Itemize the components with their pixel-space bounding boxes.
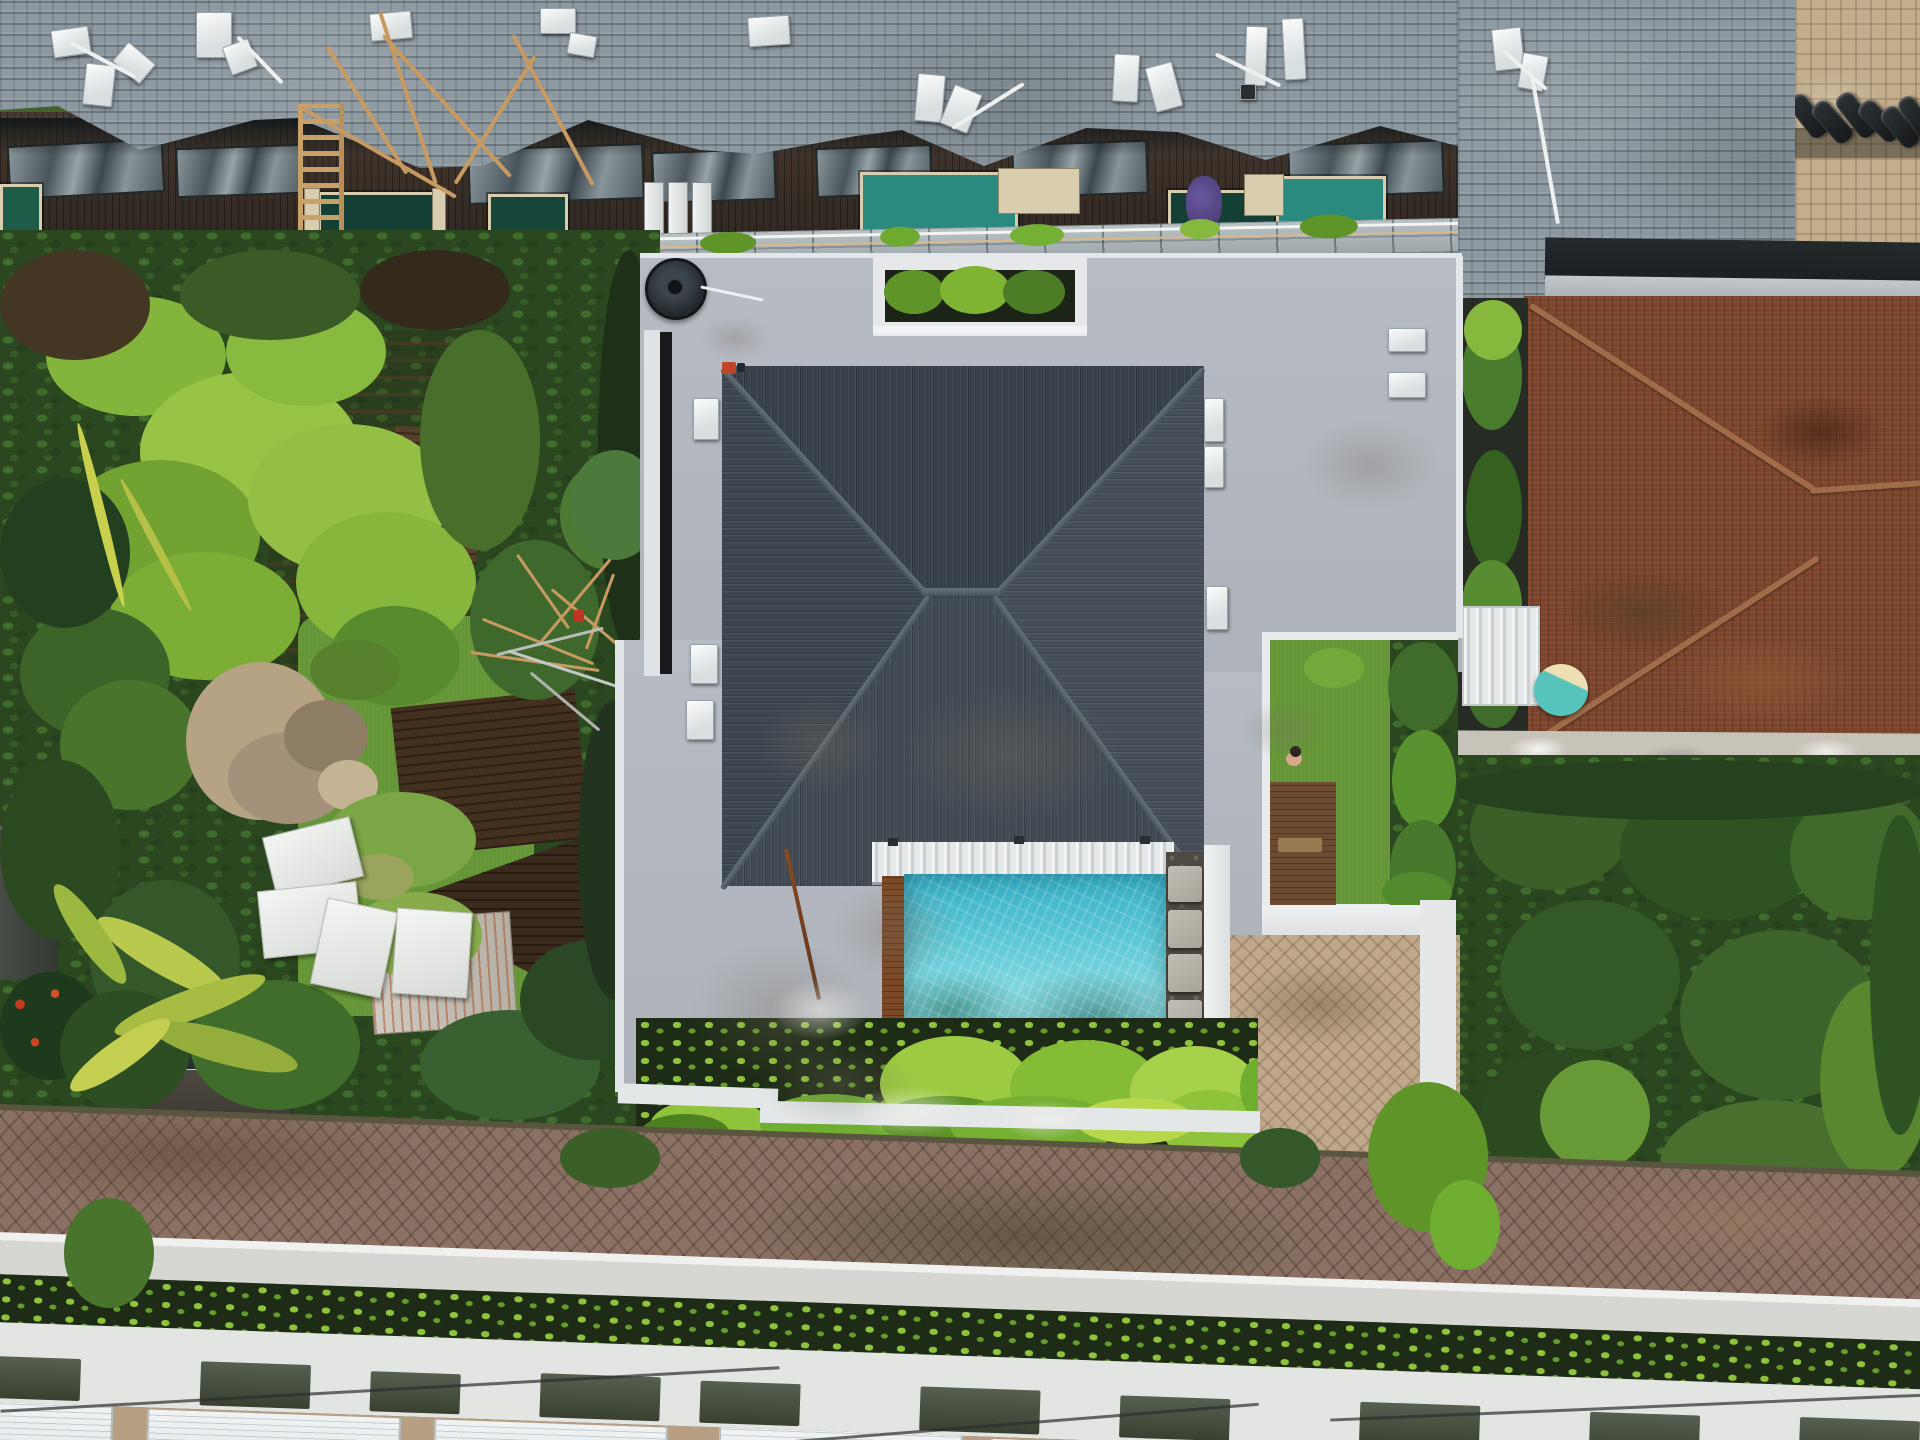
roof-stains-2 [830, 880, 960, 980]
parapet-slot [660, 332, 672, 674]
court-blobs-0 [1388, 642, 1458, 732]
wall-openings-9 [1799, 1417, 1920, 1440]
court-blobs-1 [1392, 730, 1456, 830]
stones-1 [1168, 910, 1202, 948]
ac-villa-2 [686, 700, 714, 740]
terracotta-hip-lower [1528, 555, 1820, 747]
wall-openings-4 [699, 1381, 800, 1426]
overhang-blobs-1 [64, 1198, 154, 1308]
styro-boxes-3 [391, 907, 473, 998]
notch-blobs-1 [940, 266, 1010, 314]
garden-blobs-17 [0, 760, 120, 940]
hip-ridge-center [922, 588, 1000, 596]
red-marker [722, 362, 736, 374]
ac-villa-0 [693, 398, 719, 440]
walk-tufts-6 [880, 226, 920, 247]
ac-top-6 [540, 8, 576, 34]
pergola-post-right [1140, 836, 1150, 844]
terracotta-ridge-main [1810, 480, 1920, 494]
ac-top-10 [939, 84, 983, 134]
wall-openings-7 [1359, 1402, 1480, 1440]
pavers-white-strip [1420, 900, 1456, 1110]
right-blobs-3 [1500, 900, 1680, 1050]
right-blobs-11 [1540, 1060, 1650, 1170]
ac-top-11 [1112, 53, 1140, 102]
balcony-pools-0 [0, 184, 42, 234]
ac-villa-3 [1204, 398, 1224, 442]
ac-villa-5 [1206, 586, 1228, 630]
overhang-blobs-3 [1240, 1128, 1320, 1188]
ac-top-7 [566, 32, 597, 59]
gap-blobs-1 [1466, 450, 1522, 570]
stones-0 [1168, 866, 1202, 902]
parapet-outer-lower [615, 640, 624, 1092]
garden [0, 230, 660, 1130]
white-patches-1 [1000, 1100, 1090, 1140]
wall-openings-1 [200, 1361, 311, 1409]
roof-stains-7 [760, 700, 880, 790]
court-blobs-3 [1304, 648, 1364, 688]
wall-openings-0 [0, 1355, 81, 1401]
villa-right-edge [1456, 256, 1463, 638]
overhang-blobs-2 [560, 1128, 660, 1188]
garden-blobs-13 [360, 250, 510, 330]
stones-2 [1168, 954, 1202, 992]
ac-top-1 [82, 63, 116, 108]
aerial-photo-stage [0, 0, 1920, 1440]
pavers-topright [1795, 0, 1920, 250]
wall-openings-6 [1119, 1395, 1230, 1440]
right-blobs-10 [1452, 760, 1920, 820]
garden-blobs-10 [420, 330, 540, 550]
parapet-highlight [644, 330, 660, 676]
dark-marker [737, 363, 745, 372]
ac-top-8 [747, 15, 791, 48]
gap-blobs-3 [1464, 300, 1522, 360]
beige-panels-0 [998, 168, 1080, 214]
white-patches-2 [770, 980, 870, 1040]
court-bench [1278, 838, 1322, 852]
teal-water-tank [1534, 664, 1588, 716]
notch-blobs-0 [884, 270, 944, 314]
ac-top-15 [1240, 84, 1256, 100]
ac-top-12 [1145, 61, 1184, 113]
notch-blobs-2 [1003, 270, 1065, 314]
walk-tufts-3 [1010, 224, 1064, 247]
ac-top-14 [1281, 17, 1306, 80]
lawn-patches-3 [310, 640, 400, 700]
wall-openings-2 [369, 1371, 460, 1414]
ac-villa-6 [1388, 328, 1426, 352]
ac-villa-7 [1388, 372, 1426, 398]
wall-openings-8 [1589, 1412, 1700, 1440]
ac-villa-4 [1204, 446, 1224, 488]
ac-villa-1 [690, 644, 718, 684]
roof-stains-5 [900, 690, 1120, 820]
tank-cap [666, 278, 684, 296]
slat-platform [1462, 606, 1540, 706]
beige-panels-1 [1244, 174, 1284, 216]
scaffold-low-9 [574, 610, 584, 622]
ac-top-5 [369, 10, 413, 42]
roof-stains-4 [1240, 700, 1330, 760]
overhang-blobs-4 [1430, 1180, 1500, 1270]
pergola-post-mid [1014, 836, 1024, 844]
garden-blobs-12 [0, 250, 150, 360]
garden-blobs-11 [180, 250, 360, 340]
roof-stains-3 [700, 316, 770, 360]
terracotta-hip-upper [1528, 302, 1820, 494]
walk-tufts-2 [700, 231, 756, 254]
courtyard [1262, 632, 1458, 912]
pergola-post-left [888, 838, 898, 846]
white-patches-0 [850, 1086, 970, 1136]
roof-stains-6 [1300, 420, 1440, 510]
notch-sill [873, 326, 1087, 334]
ladder [298, 104, 344, 236]
walk-tufts-4 [1300, 214, 1358, 239]
